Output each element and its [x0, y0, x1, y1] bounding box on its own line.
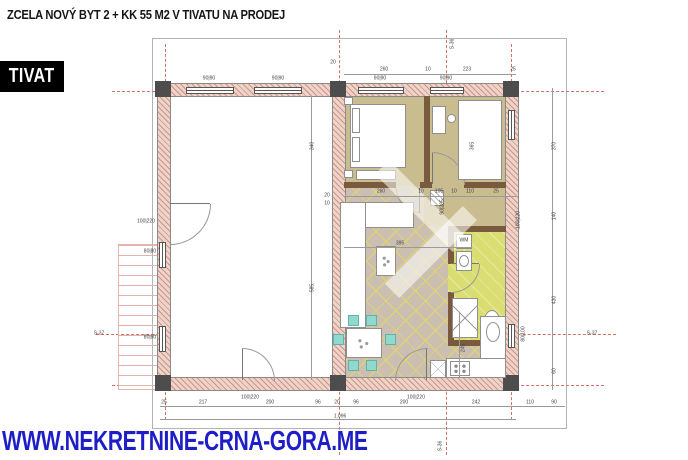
column [330, 81, 346, 97]
dim-line-interior [459, 312, 460, 378]
page-title: ZCELA NOVÝ BYT 2 + KK 55 M2 V TIVATU NA … [7, 7, 285, 22]
wardrobe-cabinet [458, 100, 502, 180]
dim-line-top [344, 74, 516, 75]
bath-sink [459, 255, 469, 267]
kitchen-sink [486, 322, 500, 342]
partition-bedroom-wardrobe [424, 96, 430, 182]
dim-line-total [160, 419, 516, 420]
coffee-table [376, 246, 396, 276]
nightstand [344, 97, 353, 105]
dining-chair [366, 360, 377, 371]
dim-line-interior [344, 196, 516, 197]
location-badge-label: TIVAT [9, 65, 55, 88]
room-left-empty [170, 96, 333, 378]
floorplan-screenshot: 20260102232590|9090|9090|9090|9037014043… [0, 0, 688, 460]
website-url: WWW.NEKRETNINE-CRNA-GORA.ME [2, 425, 368, 457]
window-top-4 [430, 87, 464, 94]
location-badge: TIVAT [0, 61, 64, 92]
dining-chair [385, 334, 396, 345]
staircase [118, 244, 162, 390]
dining-chair [333, 334, 344, 345]
window-top-2 [254, 87, 302, 94]
desk-chair [447, 114, 456, 123]
column [155, 81, 171, 97]
column [330, 375, 346, 391]
window-left-2 [159, 326, 166, 352]
dining-chair [366, 315, 377, 326]
axis-label: S-36 [439, 441, 444, 452]
column [155, 375, 171, 391]
dining-chair [348, 360, 359, 371]
pillow [352, 137, 360, 162]
desk [432, 106, 446, 134]
stove [450, 361, 470, 376]
shower [452, 298, 478, 338]
window-right-2 [508, 324, 515, 348]
nightstand [344, 170, 353, 178]
dim-line-interior [311, 96, 312, 380]
column [503, 81, 519, 97]
pillow [352, 108, 360, 133]
window-left-1 [159, 242, 166, 268]
partition-wardrobe-bottom [424, 182, 432, 188]
dim-line-right [552, 88, 553, 390]
sofa-chaise [340, 202, 366, 328]
window-top-1 [186, 87, 234, 94]
dining-table [346, 328, 382, 358]
partition-wardrobe-bottom [464, 182, 506, 188]
tall-cabinet [430, 360, 446, 378]
dim-line-bottom [160, 406, 565, 407]
window-right-1 [508, 110, 515, 140]
dining-chair [348, 315, 359, 326]
dim-line-interior [344, 247, 472, 248]
window-top-3 [358, 87, 404, 94]
